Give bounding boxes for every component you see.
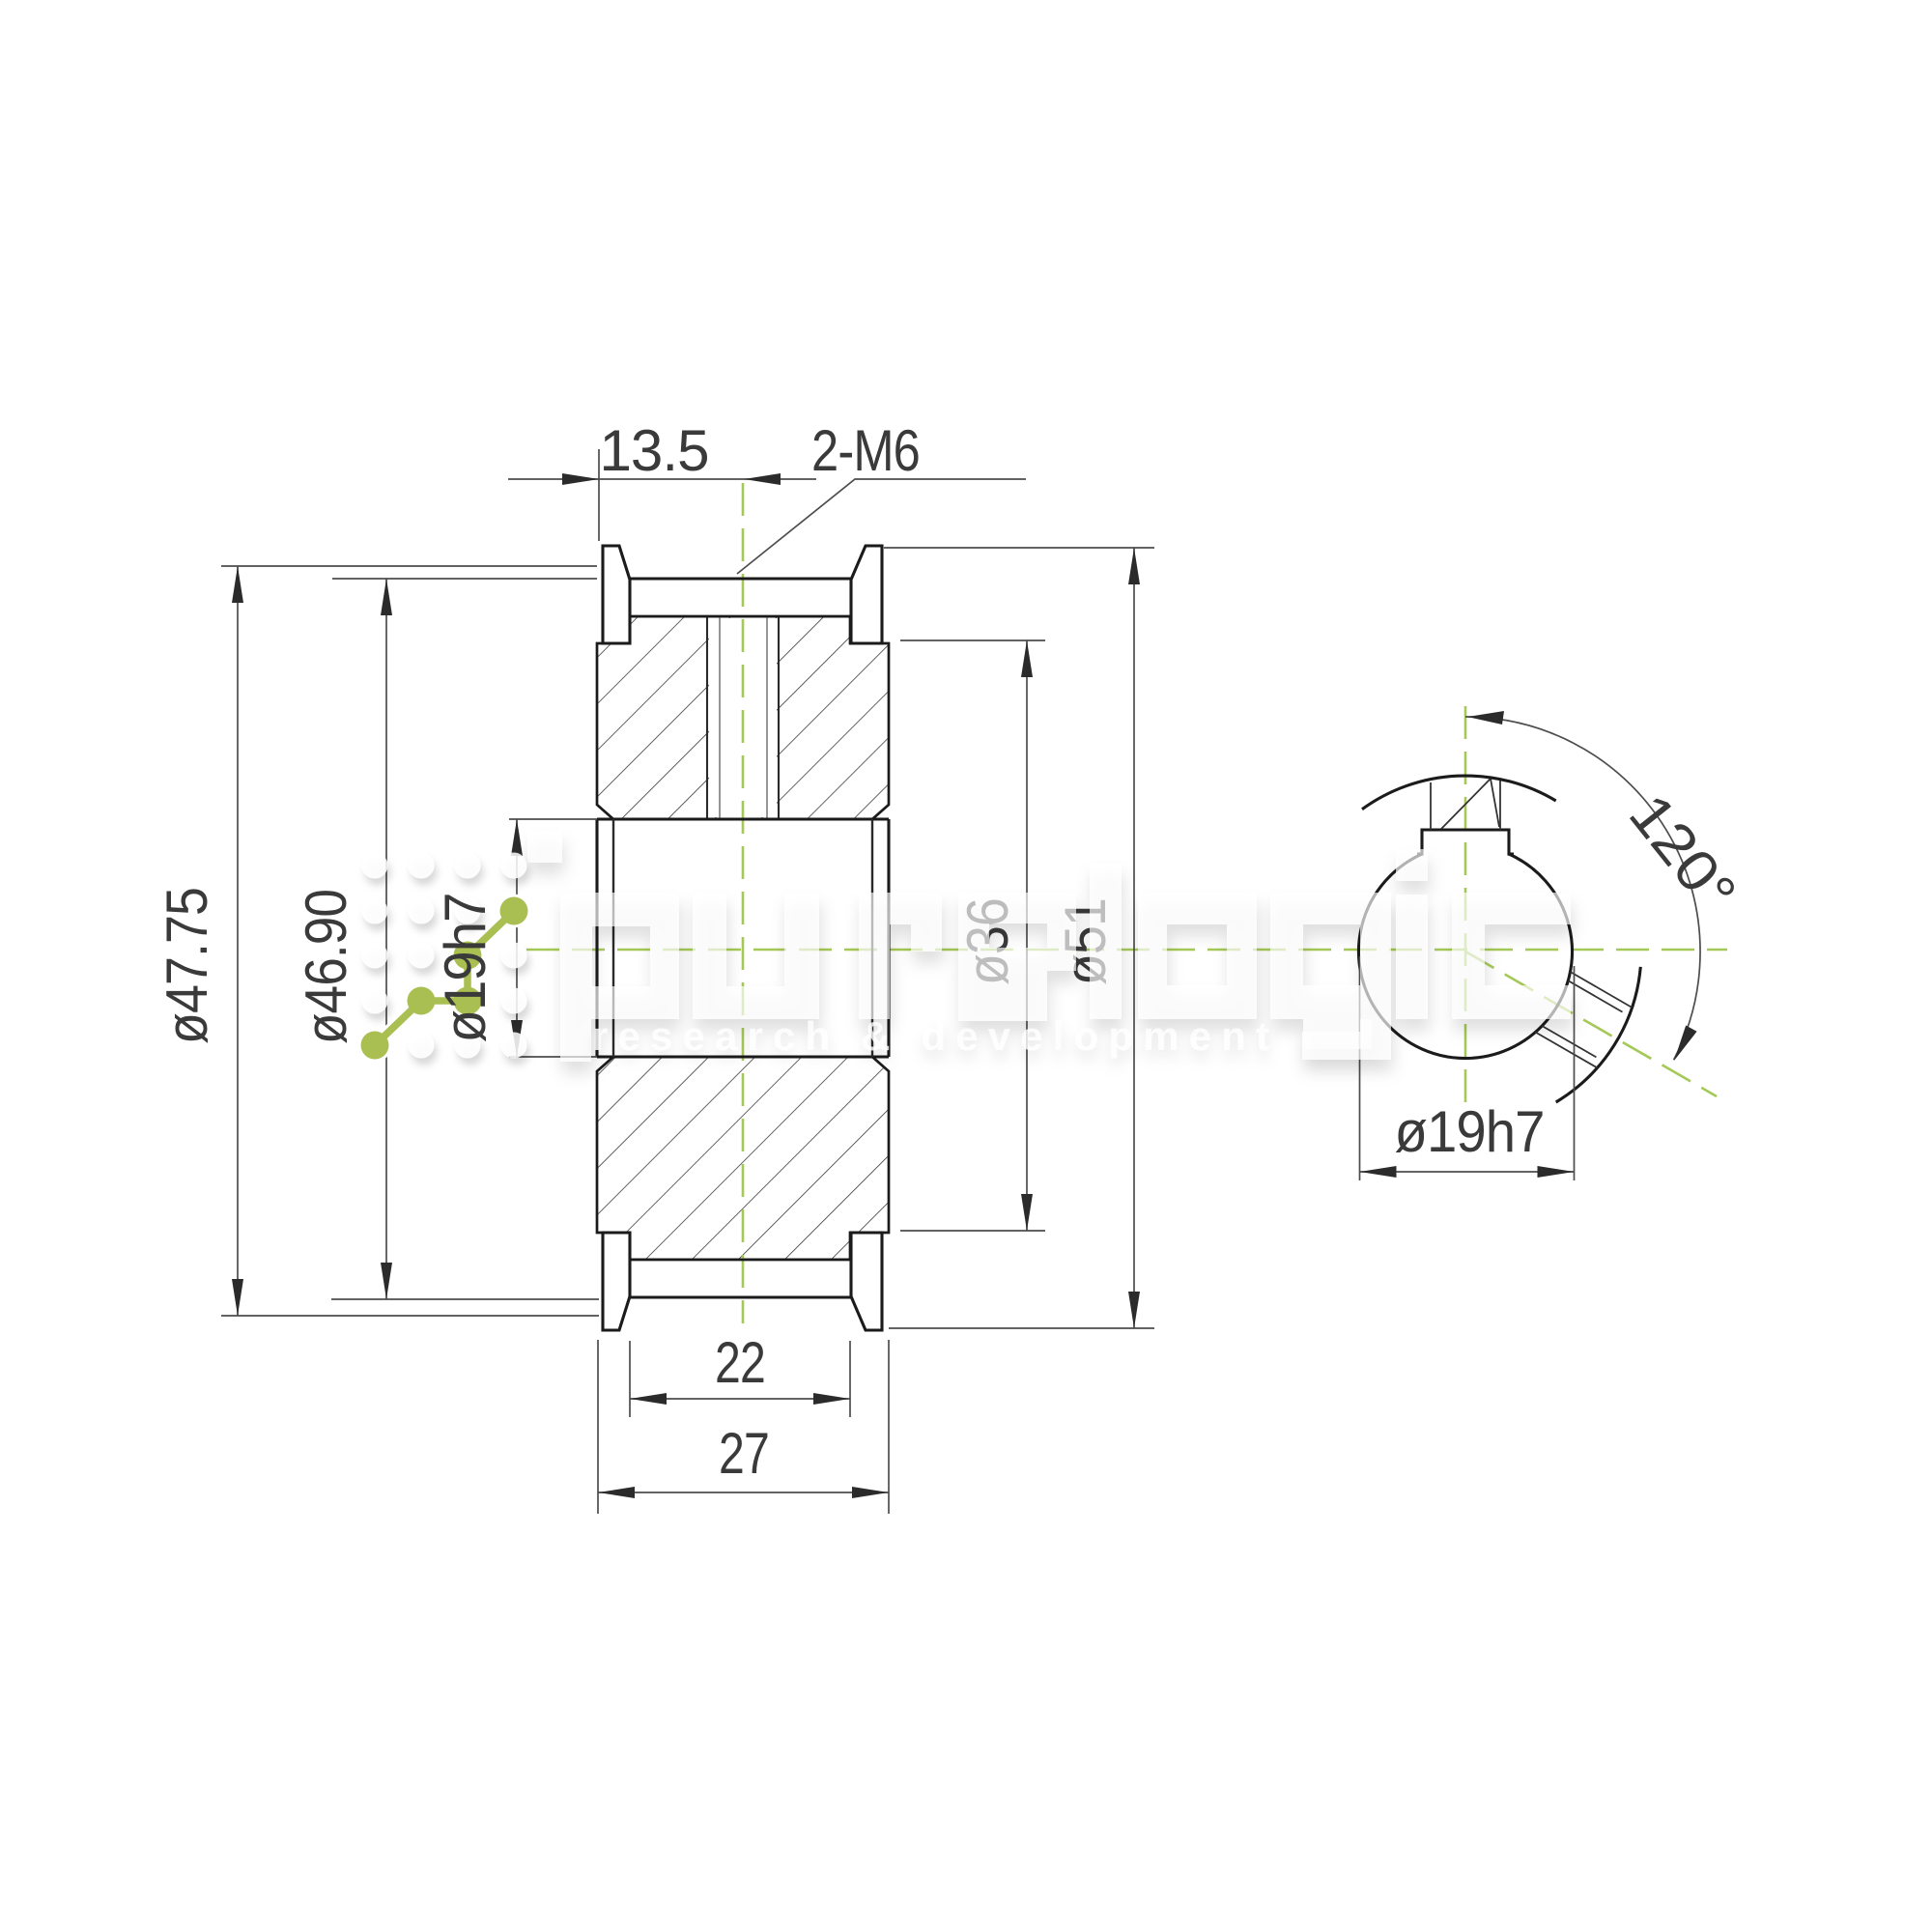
svg-text:2-M6: 2-M6	[811, 418, 920, 483]
svg-text:ø47.75: ø47.75	[155, 888, 219, 1044]
svg-text:ø19h7: ø19h7	[1395, 1099, 1545, 1164]
svg-text:ø19h7: ø19h7	[433, 894, 497, 1043]
svg-text:27: 27	[719, 1421, 769, 1486]
svg-text:ø46.90: ø46.90	[294, 890, 358, 1044]
svg-text:research & development: research & development	[592, 1013, 1276, 1059]
svg-text:22: 22	[715, 1330, 765, 1395]
svg-text:13.5: 13.5	[600, 418, 709, 483]
